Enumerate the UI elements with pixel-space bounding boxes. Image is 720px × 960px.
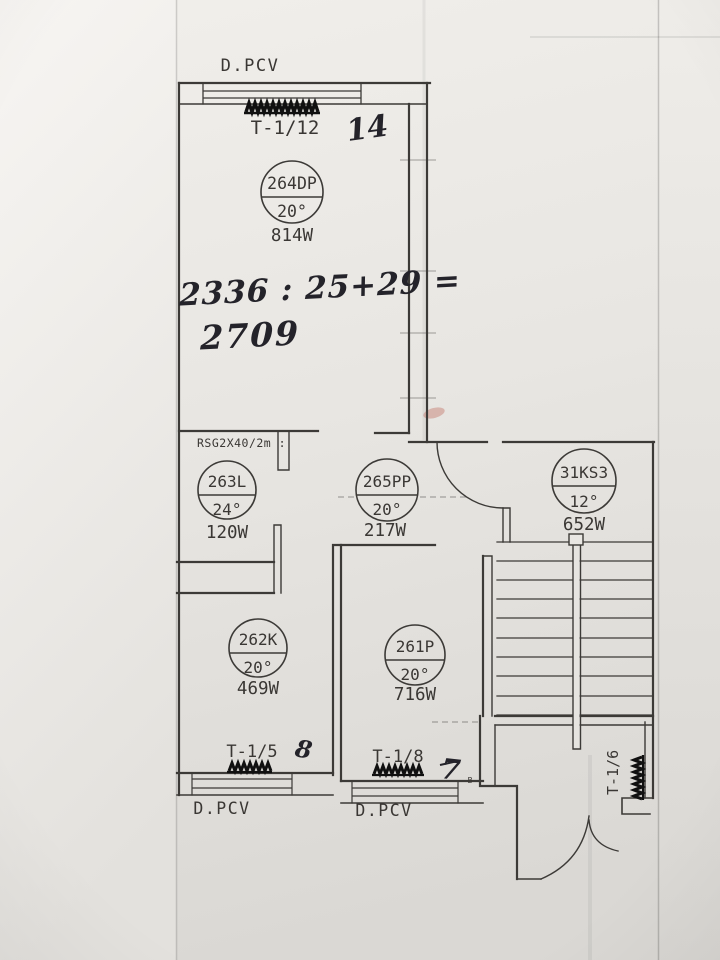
room-power: 716W <box>394 685 437 705</box>
handwritten-room-7: 7 <box>439 752 462 787</box>
room-power: 217W <box>364 521 407 541</box>
room-temp: 20° <box>373 500 402 519</box>
room-power: 120W <box>206 523 249 543</box>
room-id: 261P <box>396 637 435 656</box>
cable-label: RSG2X40/2m : <box>197 436 286 450</box>
window-label-top: D.PCV <box>221 56 280 76</box>
room-temp: 20° <box>401 665 430 684</box>
room-temp: 12° <box>570 492 599 511</box>
room-id: 264DP <box>267 174 317 193</box>
room-power: 652W <box>563 515 606 535</box>
radiator-label-top: T-1/12 <box>251 117 320 139</box>
room-temp: 20° <box>244 658 273 677</box>
window-label-bottom-mid: D.PCV <box>355 801 412 820</box>
equation-line-2: 2709 <box>199 313 300 357</box>
radiator-label-t16: T-1/6 <box>604 750 622 795</box>
paper-right-strip <box>659 0 720 960</box>
room-id: 265PP <box>363 472 411 491</box>
room-temp: 20° <box>277 202 307 221</box>
room-power: 814W <box>271 226 314 246</box>
window-label-bottom-left: D.PCV <box>193 799 250 818</box>
handrail-mask <box>574 537 580 749</box>
room-id: 31KS3 <box>560 463 608 482</box>
room-power: 469W <box>237 679 280 699</box>
handwritten-floor-number: 14 <box>344 108 390 148</box>
room-id: 263L <box>208 472 247 491</box>
room-id: 262K <box>239 630 278 649</box>
room-temp: 24° <box>213 500 242 519</box>
floor-plan-svg: D.PCV T-1/12 RSG2X40/2m : T-1/5 T-1/8 T-… <box>0 0 720 960</box>
radiator-label-t18: T-1/8 <box>372 747 423 767</box>
floor-plan-photo: D.PCV T-1/12 RSG2X40/2m : T-1/5 T-1/8 T-… <box>0 0 720 960</box>
radiator-label-t15: T-1/5 <box>226 742 277 762</box>
paper-left-sheet <box>0 0 177 960</box>
handrail-post <box>569 534 583 545</box>
corner-mark: B <box>468 776 473 785</box>
